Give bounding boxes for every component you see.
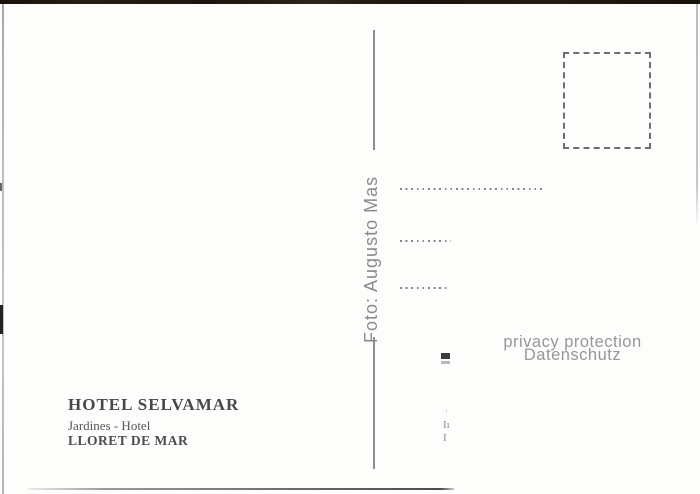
ink-mark-shadow — [441, 361, 450, 364]
ink-mark — [441, 353, 450, 359]
photographer-credit: Foto: Augusto Mas — [360, 167, 382, 343]
edge-fragment-3: I — [443, 433, 447, 444]
hotel-location: LLORET DE MAR — [68, 433, 239, 448]
postcard-back-scan: Foto: Augusto Mas privacy protection Dat… — [0, 0, 700, 494]
scan-right-edge — [696, 4, 698, 228]
edge-fragment-2: Iı — [443, 420, 450, 431]
address-line-2 — [400, 240, 451, 242]
scan-top-edge — [0, 0, 700, 4]
address-line-1 — [400, 188, 544, 190]
scan-bottom-edge — [28, 488, 454, 490]
scan-left-edge — [2, 4, 4, 494]
hotel-caption-block: HOTEL SELVAMAR Jardines - Hotel LLORET D… — [68, 396, 239, 448]
scan-left-artifact-small — [0, 183, 2, 191]
scan-left-artifact — [0, 305, 3, 334]
stamp-box — [563, 52, 651, 149]
address-line-3 — [400, 287, 448, 289]
privacy-watermark: privacy protection Datenschutz — [460, 336, 685, 362]
watermark-line-2: Datenschutz — [460, 349, 685, 362]
hotel-subtitle: Jardines - Hotel — [68, 418, 239, 433]
divider-line-top — [373, 30, 375, 150]
edge-fragment-1: · — [445, 406, 448, 417]
hotel-title: HOTEL SELVAMAR — [68, 396, 239, 414]
divider-line-bottom — [373, 337, 375, 469]
